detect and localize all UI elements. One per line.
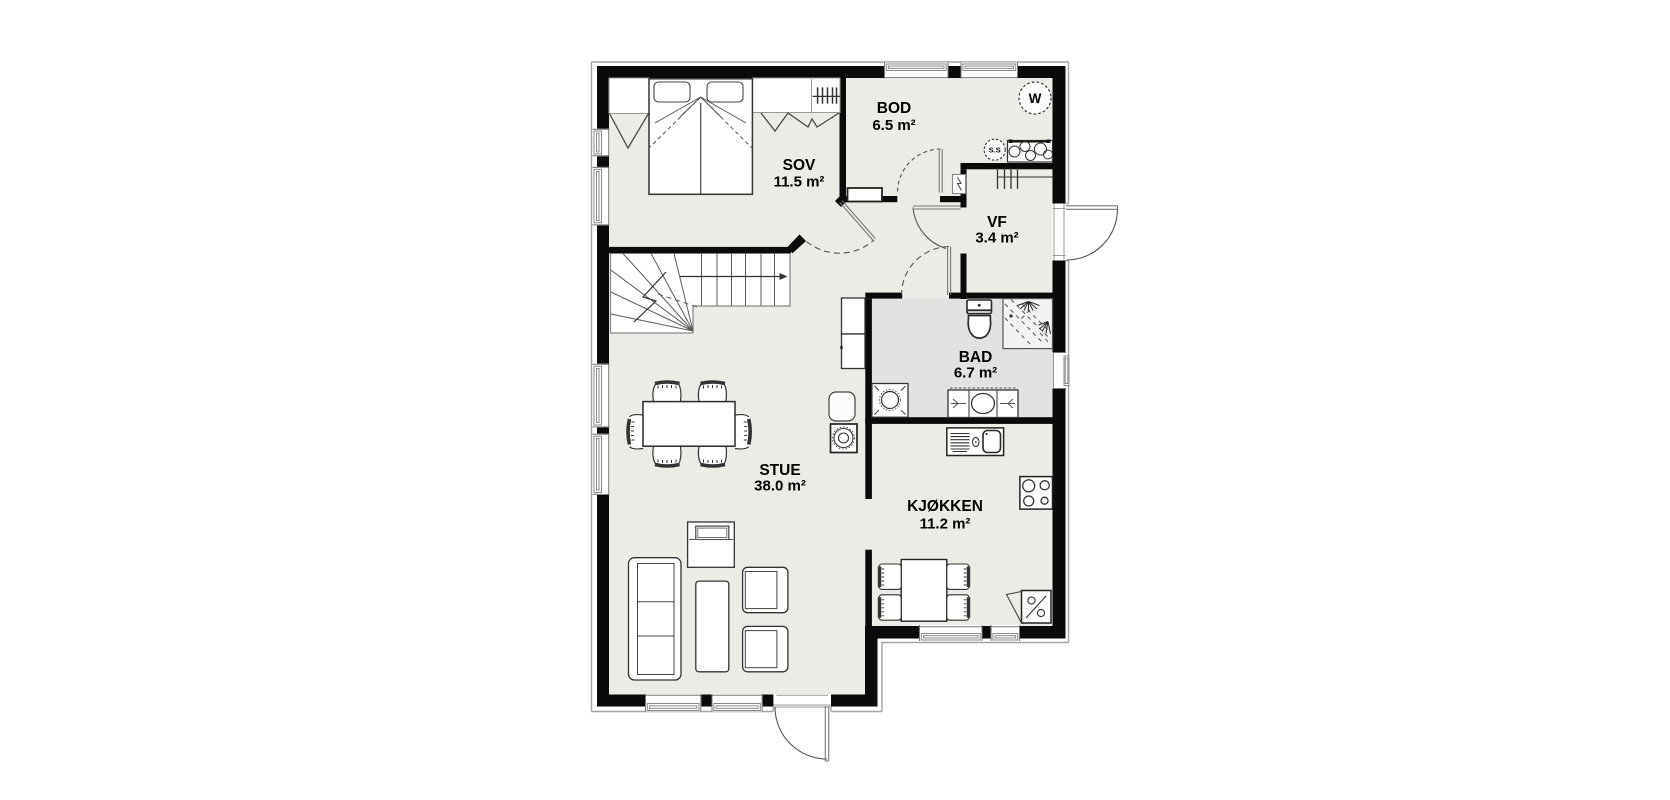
svg-text:W: W (1029, 91, 1042, 106)
svg-text:SOV: SOV (783, 157, 816, 174)
svg-text:BOD: BOD (877, 100, 911, 117)
svg-text:11.5 m²: 11.5 m² (774, 174, 825, 191)
svg-text:KJØKKEN: KJØKKEN (907, 498, 983, 515)
svg-text:VF: VF (987, 214, 1007, 231)
svg-text:6.7 m²: 6.7 m² (954, 365, 997, 382)
svg-text:3.4 m²: 3.4 m² (975, 230, 1018, 247)
svg-text:STUE: STUE (759, 462, 800, 479)
svg-text:38.0 m²: 38.0 m² (754, 478, 806, 495)
svg-text:6.5 m²: 6.5 m² (872, 117, 915, 134)
svg-text:BAD: BAD (959, 349, 993, 366)
svg-text:11.2 m²: 11.2 m² (920, 516, 971, 533)
svg-text:S.S: S.S (989, 145, 1001, 154)
